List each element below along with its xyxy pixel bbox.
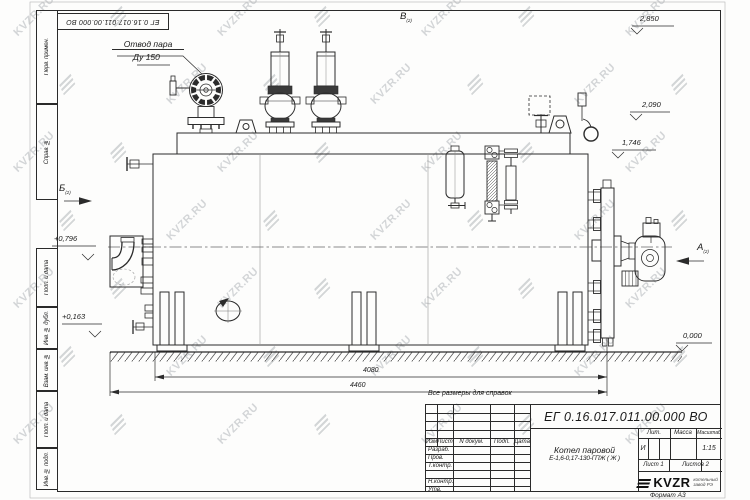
doc-number-stamp: ЕГ 0.16.017.011.00.000 ВО — [57, 13, 169, 30]
tb-sheets-info: Листов 2 — [669, 459, 722, 471]
margin-cell-sprav-no: Справ. № — [36, 104, 58, 200]
tb-product-name: Котел паровой — [554, 445, 615, 455]
margin-cell-inv-podl: Инв. № подл. — [36, 448, 58, 490]
margin-cell-label: Подп. и дата — [44, 402, 50, 437]
reference-note: Все размеры для справок — [428, 390, 512, 397]
kvzr-logo-subtext: котельный завод РЭ — [693, 477, 722, 487]
elevation-2850: 2,850 — [640, 15, 659, 23]
tb-scale-value: 1:15 — [696, 438, 722, 459]
tb-col-izm: Изм — [426, 438, 437, 446]
margin-cell-label: Справ. № — [44, 139, 50, 164]
tb-col-list: Лист — [437, 438, 453, 446]
tb-product-type: Е-1,6-0,17-130-ГПЖ ( Ж ) — [549, 455, 620, 462]
elevation-2090: 2,090 — [642, 101, 661, 109]
view-sheet-ref: (2) — [65, 190, 71, 195]
tb-row-tkontr: Т.контр. — [428, 462, 453, 470]
tb-lit-label: Лит. — [638, 428, 670, 438]
tb-row-prov: Пров. — [428, 454, 453, 462]
tb-mass-label: Масса — [670, 428, 696, 438]
drawing-sheet: KVZR.RUKVZR.RUKVZR.RUKVZR.RUKVZR.RUKVZR.… — [0, 0, 750, 500]
margin-cell-label: Подп. и дата — [44, 260, 50, 295]
margin-cell-label: Инв. № дубл. — [44, 311, 50, 345]
tb-col-docnum: N докум. — [453, 438, 490, 446]
tb-scale-label: Масштаб — [698, 429, 720, 438]
tb-col-podp: Подп. — [490, 438, 514, 446]
margin-cell-vzam-inv: Взам. инв. № — [36, 349, 58, 391]
margin-cell-podp-data-2: Подп. и дата — [36, 391, 58, 448]
view-sheet-ref: (2) — [406, 18, 412, 23]
tb-row-blank — [428, 470, 453, 478]
steam-outlet-label-line1: Отвод пара — [112, 40, 184, 50]
margin-cell-label: Взам. инв. № — [44, 353, 50, 387]
margin-cell-inv-dubl: Инв. № дубл. — [36, 307, 58, 349]
tb-row-nkontr: Н.контр. — [428, 478, 453, 486]
dimension-4080: 4080 — [363, 367, 379, 374]
view-label-v: В(2) — [400, 12, 412, 24]
elevation-0000: 0,000 — [683, 332, 702, 340]
elevation-0163: +0,163 — [62, 313, 85, 321]
margin-cell-label: Инв. № подл. — [44, 452, 50, 486]
kvzr-logo-icon — [636, 477, 652, 488]
view-sheet-ref: (2) — [703, 249, 709, 254]
kvzr-logo-text: KVZR — [653, 475, 690, 490]
tb-row-utv: Утв. — [428, 486, 453, 493]
tb-doc-number: ЕГ 0.16.017.011.00.000 ВО — [530, 405, 722, 428]
view-label-a: А(2) — [697, 243, 709, 255]
tb-col-data: Дата — [514, 438, 530, 446]
title-block: Изм Лист N докум. Подп. Дата Разраб. Про… — [425, 404, 721, 492]
doc-number-stamp-text: ЕГ 0.16.017.011.00.000 ВО — [66, 18, 160, 25]
tb-product-name-cell: Котел паровой Е-1,6-0,17-130-ГПЖ ( Ж ) — [532, 435, 637, 471]
view-label-b: Б(2) — [59, 184, 71, 196]
margin-cell-perv-primen: Перв. примен. — [36, 10, 58, 104]
elevation-1746: 1,746 — [622, 139, 641, 147]
dimension-4460: 4460 — [350, 382, 366, 389]
elevation-0796: +0,796 — [54, 235, 77, 243]
tb-lit-value: И — [638, 438, 648, 459]
tb-row-razrab: Разраб. — [428, 446, 453, 454]
steam-outlet-label-line2: Ду 150 — [133, 53, 160, 62]
tb-logo-cell: KVZR котельный завод РЭ — [638, 471, 722, 493]
margin-cell-label: Перв. примен. — [44, 38, 50, 75]
tb-sheet-info: Лист 1 — [638, 459, 669, 471]
margin-cell-podp-data-1: Подп. и дата — [36, 248, 58, 307]
format-note: Формат А3 — [650, 493, 686, 500]
